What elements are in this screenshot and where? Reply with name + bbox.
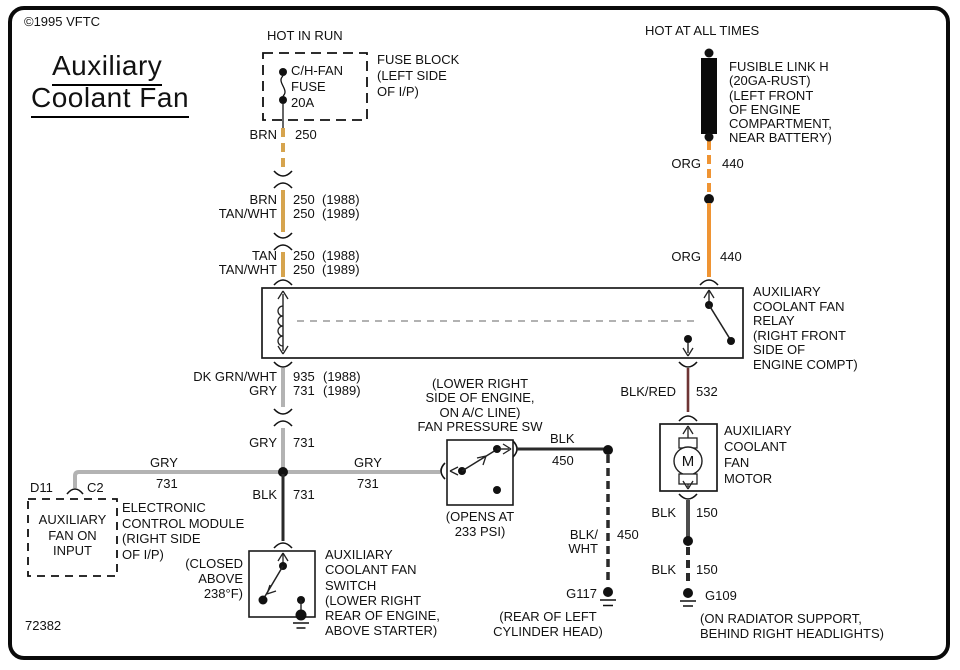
wire-color-label: BLK [566, 563, 676, 577]
connector-cup-icon [679, 362, 697, 367]
wire-circuit-label: 250 [293, 193, 315, 207]
wire-color-label: GRY [167, 436, 277, 450]
g109-name: G109 [705, 589, 737, 603]
wire-color-label: BLK/RED [566, 385, 676, 399]
wire-circuit-label: 731 [293, 384, 315, 398]
pressure-switch-label: (LOWER RIGHT SIDE OF ENGINE, ON A/C LINE… [405, 377, 555, 434]
page-title-line1: Auxiliary [52, 50, 162, 86]
wire-circuit-label: 150 [696, 563, 718, 577]
g109-ground-dot [683, 588, 693, 598]
fusible-link-label: FUSIBLE LINK H (20GA-RUST) (LEFT FRONT O… [729, 60, 832, 146]
ecm-pin-label: D11 [30, 481, 53, 495]
junction-dot [603, 445, 613, 455]
wire-circuit-label: 935 [293, 370, 315, 384]
wire-color-label: ORG [591, 157, 701, 171]
wire-color-label: GRY [354, 456, 382, 470]
relay-label: AUXILIARY COOLANT FAN RELAY (RIGHT FRONT… [753, 285, 858, 372]
wire-circuit-label: 731 [357, 477, 379, 491]
connector-cap-icon [67, 489, 83, 494]
page-title-line2: Coolant Fan [31, 82, 189, 118]
inline-connector-icon [274, 171, 292, 188]
fan-switch-symbol [249, 551, 315, 628]
wire-color-label: GRY [150, 456, 178, 470]
motor-m-symbol: M [679, 453, 697, 470]
ground-icon [600, 600, 616, 606]
ground-icon [680, 601, 696, 606]
wire-color-label: WHT [488, 542, 598, 556]
copyright: ©1995 VFTC [24, 15, 100, 29]
fan-switch-label: AUXILIARY COOLANT FAN SWITCH (LOWER RIGH… [325, 547, 440, 639]
wire-circuit-label: 450 [552, 454, 574, 468]
wire-circuit-label: 440 [722, 157, 744, 171]
wire-year-label: (1989) [322, 263, 360, 277]
connector-cap-icon [700, 280, 718, 285]
wire-circuit-label: 150 [696, 506, 718, 520]
pressure-switch-symbol [447, 440, 513, 505]
splice-dot [683, 536, 693, 546]
wire-circuit-label: 250 [295, 128, 317, 142]
wire-year-label: (1988) [323, 370, 361, 384]
fan-switch-note: (CLOSED ABOVE 238°F) [143, 556, 243, 601]
ecm-input-label: AUXILIARY FAN ON INPUT [28, 512, 117, 559]
wire-circuit-label: 440 [720, 250, 742, 264]
wire-color-label: TAN [167, 249, 277, 263]
wire-circuit-label: 450 [617, 528, 639, 542]
wire-color-label: TAN/WHT [167, 263, 277, 277]
wire-year-label: (1988) [322, 193, 360, 207]
wire-circuit-label: 250 [293, 249, 315, 263]
g117-label: (REAR OF LEFT CYLINDER HEAD) [468, 609, 628, 639]
wire-color-label: BLK [566, 506, 676, 520]
ecm-connector-label: C2 [87, 481, 104, 495]
relay-symbol [262, 288, 743, 358]
wire-circuit-label: 250 [293, 263, 315, 277]
inline-connector-icon [274, 409, 292, 426]
hot-in-run-label: HOT IN RUN [267, 29, 343, 43]
ground-icon [293, 623, 309, 628]
connector-cap-icon [274, 280, 292, 285]
wire-circuit-label: 250 [293, 207, 315, 221]
wire-year-label: (1989) [323, 384, 361, 398]
wire-color-label: BRN [167, 193, 277, 207]
gry-731-left-wire [75, 472, 283, 488]
diagram-number: 72382 [25, 619, 61, 633]
fusible-link-symbol [701, 49, 717, 142]
connector-cup-icon [679, 494, 697, 499]
motor-label: AUXILIARY COOLANT FAN MOTOR [724, 423, 792, 487]
fuse-name: C/H-FAN FUSE 20A [291, 63, 343, 111]
wire-circuit-label: 731 [293, 488, 315, 502]
wire-color-label: BLK/ [488, 528, 598, 542]
connector-cap-icon [679, 416, 697, 421]
connector-cup-icon [274, 362, 292, 367]
wire-year-label: (1988) [322, 249, 360, 263]
g109-label: (ON RADIATOR SUPPORT, BEHIND RIGHT HEADL… [700, 611, 884, 641]
wiring-diagram: ©1995 VFTC Auxiliary Coolant Fan 72382 H… [0, 0, 960, 670]
wire-color-label: BRN [167, 128, 277, 142]
wire-circuit-label: 731 [293, 436, 315, 450]
wire-circuit-label: 532 [696, 385, 718, 399]
wire-year-label: (1989) [322, 207, 360, 221]
wire-color-label: GRY [167, 384, 277, 398]
connector-arc-icon [441, 463, 445, 479]
wire-color-label: TAN/WHT [167, 207, 277, 221]
wire-color-label: ORG [591, 250, 701, 264]
hot-at-all-times-label: HOT AT ALL TIMES [645, 24, 759, 38]
ecm-label: ELECTRONIC CONTROL MODULE (RIGHT SIDE OF… [122, 500, 244, 562]
wire-color-label: DK GRN/WHT [167, 370, 277, 384]
connector-cap-icon [274, 543, 292, 548]
fuse-block-label: FUSE BLOCK (LEFT SIDE OF I/P) [377, 52, 459, 100]
g117-ground-dot [603, 587, 613, 597]
splice-dot [704, 194, 714, 204]
wire-color-label: BLK [550, 432, 575, 446]
fuse-icon [281, 76, 285, 96]
g117-name: G117 [487, 587, 597, 601]
